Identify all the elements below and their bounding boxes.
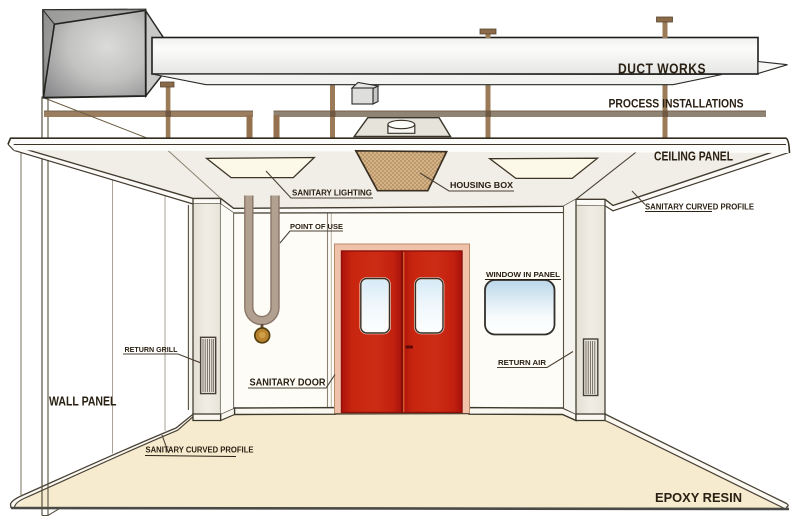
- svg-text:SANITARY CURVED PROFILE: SANITARY CURVED PROFILE: [645, 203, 755, 212]
- svg-text:SANITARY CURVED PROFILE: SANITARY CURVED PROFILE: [146, 446, 255, 455]
- svg-text:PROCESS INSTALLATIONS: PROCESS INSTALLATIONS: [609, 97, 744, 111]
- svg-text:SANITARY DOOR: SANITARY DOOR: [250, 378, 327, 389]
- svg-text:RETURN GRILL: RETURN GRILL: [125, 345, 178, 354]
- svg-text:DUCT WORKS: DUCT WORKS: [618, 62, 706, 78]
- svg-text:WALL PANEL: WALL PANEL: [49, 395, 117, 409]
- svg-text:RETURN AIR: RETURN AIR: [498, 358, 547, 367]
- svg-text:POINT OF USE: POINT OF USE: [290, 222, 343, 231]
- svg-text:EPOXY RESIN: EPOXY RESIN: [655, 490, 742, 505]
- svg-text:HOUSING BOX: HOUSING BOX: [450, 181, 514, 190]
- svg-text:WINDOW IN PANEL: WINDOW IN PANEL: [486, 270, 560, 279]
- svg-text:SANITARY LIGHTING: SANITARY LIGHTING: [292, 189, 372, 198]
- svg-text:CEILING PANEL: CEILING PANEL: [654, 150, 733, 164]
